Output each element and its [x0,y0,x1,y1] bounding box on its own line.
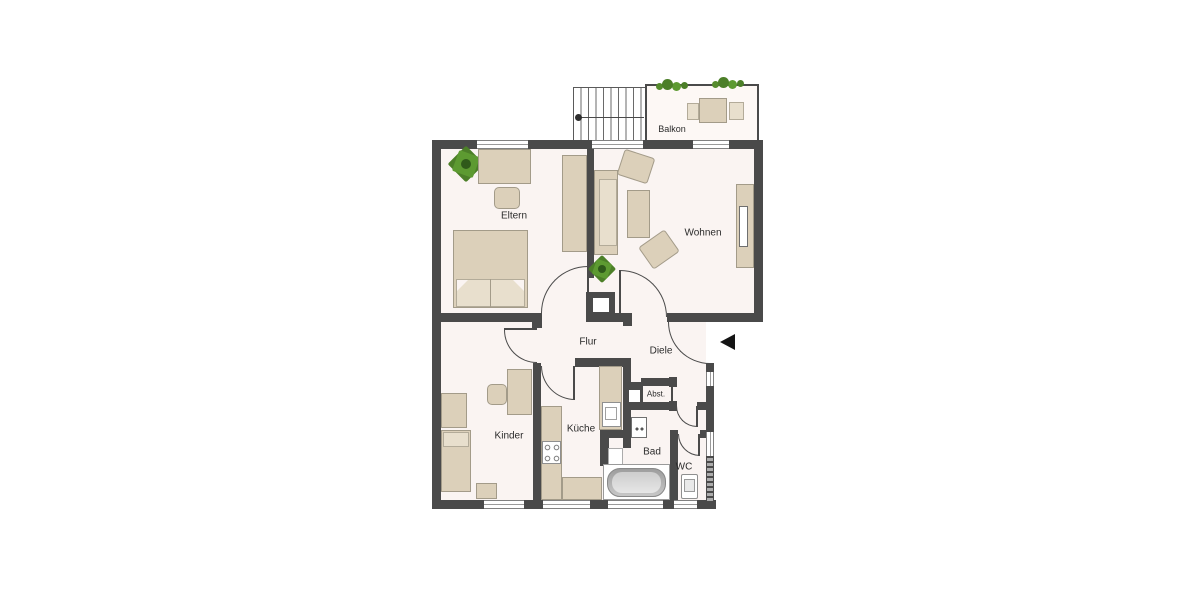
bad-bathtub-basin [612,472,661,493]
balcony-chair [687,103,699,120]
watermark [707,458,713,502]
balcony-planter-icon [662,79,673,90]
bad-niche [608,448,623,465]
kinder-nightstand [476,483,497,499]
kinder-wardrobe [441,393,467,428]
kueche-sink-basin [605,407,617,420]
wall-corner [532,313,542,328]
wall-left [432,140,441,509]
wohnen-tv [739,206,748,247]
window-wohnen-stairs [592,140,643,149]
room-label-wc: WC [676,462,693,473]
room-label-balkon: Balkon [658,124,686,134]
door-leaf-bad [696,406,698,427]
eltern-bed-fold [513,280,524,291]
eltern-desk [478,149,531,184]
chimney-flue [593,298,609,312]
room-label-eltern: Eltern [501,211,527,222]
room-label-bad: Bad [643,447,661,458]
stair-walk-line [578,117,644,118]
balcony-chair [729,102,744,120]
wohnen-coffee-table [627,190,650,238]
balcony-table [699,98,727,123]
eltern-bed-duvet-split [490,279,491,307]
kueche-stove [542,441,561,464]
window-kueche [543,500,590,509]
stair-walk-start-dot [575,114,582,121]
wall-bottom [590,500,608,509]
balcony-planter-icon [718,77,729,88]
wohnen-sofa-seat [599,179,617,246]
wall-abst-bottom [641,402,671,410]
wall-kueche-diele [623,358,631,384]
balcony-door [693,140,729,149]
room-label-flur: Flur [579,337,596,348]
room-label-wohnen: Wohnen [684,228,721,239]
bad-door-jamb [697,402,706,410]
door-leaf-wohnen [619,270,621,317]
wall-abst-top [641,378,671,386]
room-label-kinder: Kinder [495,431,524,442]
door-leaf-eltern [587,266,589,313]
window-kinder [484,500,524,509]
wall-right-lower [706,385,714,432]
wall-middle [432,313,542,322]
plant-icon [453,151,479,177]
kinder-chair [487,384,507,405]
window-eltern [477,140,528,149]
window-wc-side [706,432,714,456]
wall-right-upper [754,140,763,322]
room-label-kueche: Küche [567,424,595,435]
door-leaf-abst [671,385,673,402]
bad-washing-machine [631,417,647,438]
window-wc [674,500,697,509]
eltern-bed-fold [457,280,468,291]
window-diele [706,372,714,386]
room-label-abst: Abst. [647,390,665,399]
door-leaf-kueche [573,366,575,400]
door-leaf-kinder [504,328,537,330]
kinder-bed-pillow [443,432,469,447]
staircase [573,87,648,148]
kinder-desk [507,369,532,415]
window-bad [608,500,663,509]
shaft-flue [629,390,640,402]
entrance-arrow-icon [720,334,735,350]
eltern-wardrobe [562,155,587,252]
wall-kinder-kueche [533,363,541,503]
room-label-diele: Diele [650,346,673,357]
plant-icon [592,259,612,279]
wall-bottom [432,500,484,509]
kueche-counter-bottom [562,477,602,500]
door-leaf-wc [698,434,700,456]
eltern-chair [494,187,520,209]
wall-kueche-bad [623,410,631,448]
floor-plan: Eltern Wohnen Balkon Flur Diele Kinder K… [0,0,1200,600]
wall-middle [667,313,755,322]
wc-toilet-seat [684,479,695,492]
